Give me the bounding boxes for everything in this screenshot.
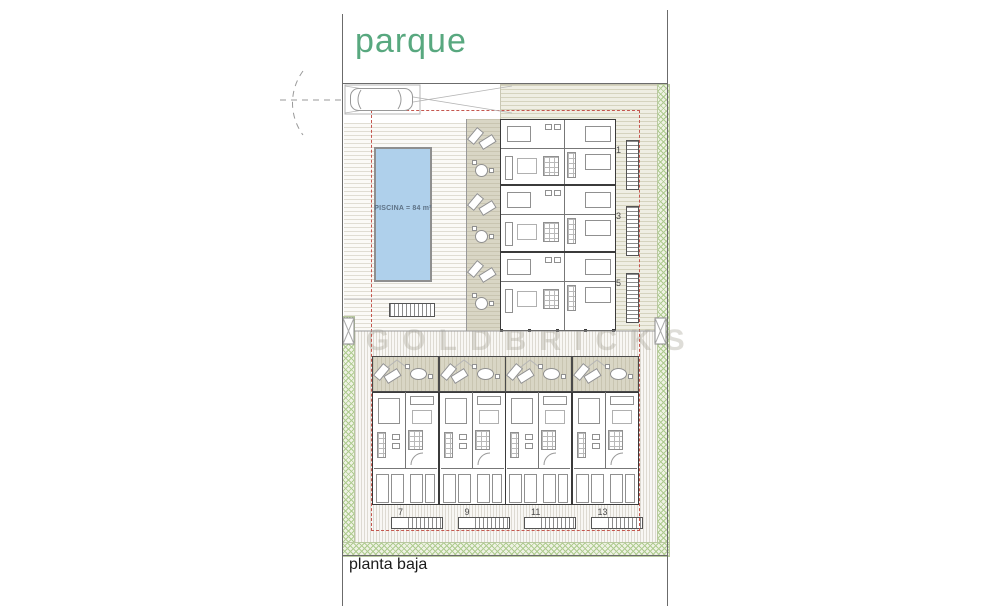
terrace-chair-icon	[472, 160, 477, 165]
bed-icon	[410, 474, 423, 503]
kitchen-counter-icon	[377, 432, 386, 458]
terrace-chair-icon	[561, 374, 566, 379]
pool-area-label: PISCINA = 84 m²	[374, 205, 432, 212]
swimming-pool	[374, 147, 432, 282]
dining-table-icon	[608, 430, 623, 450]
bed-icon	[585, 192, 611, 208]
stairs-icon	[626, 140, 639, 190]
pergola-grille	[524, 517, 576, 529]
wardrobe-icon	[492, 474, 502, 503]
pergola-grille	[458, 517, 510, 529]
bed-icon	[585, 126, 611, 142]
unit-number: 9	[465, 507, 470, 517]
floor-plan-label: planta baja	[349, 556, 427, 574]
bath-fixture-icon	[392, 443, 400, 449]
grille-bars	[541, 518, 575, 528]
unit-number: 11	[531, 507, 540, 517]
bed-icon	[585, 287, 611, 303]
bath-fixture-icon	[459, 434, 467, 440]
pergola-grille	[391, 517, 443, 529]
rug-icon	[412, 410, 432, 424]
interior-wall	[564, 120, 565, 184]
dining-table-icon	[408, 430, 423, 450]
bed-icon	[509, 474, 522, 503]
bed-icon	[507, 192, 531, 208]
interior-wall	[501, 281, 615, 282]
grille-bars	[408, 518, 442, 528]
bed-icon	[376, 474, 389, 503]
sofa-icon	[610, 396, 634, 405]
rug-icon	[479, 410, 499, 424]
rug-icon	[545, 410, 565, 424]
wardrobe-icon	[558, 474, 568, 503]
terrace-chair-icon	[472, 364, 477, 369]
unit-number: 13	[598, 507, 608, 517]
bed-icon	[445, 398, 467, 424]
gate-swing-arc	[292, 71, 303, 135]
terrace-chair-icon	[628, 374, 633, 379]
park-label: parque	[355, 22, 467, 61]
kitchen-counter-icon	[444, 432, 453, 458]
interior-wall	[374, 468, 437, 469]
pool-steps-grille	[389, 303, 435, 317]
sheet-border-left	[342, 14, 343, 606]
sofa-icon	[505, 289, 513, 313]
interior-wall	[574, 468, 637, 469]
bed-icon	[585, 220, 611, 236]
bed-icon	[507, 126, 531, 142]
terrace-chair-icon	[472, 226, 477, 231]
plan-top-line	[342, 83, 668, 84]
bed-icon	[507, 259, 531, 275]
bath-fixture-icon	[592, 434, 600, 440]
terrace-chair-icon	[489, 234, 494, 239]
rug-icon	[612, 410, 632, 424]
bath-fixture-icon	[554, 190, 561, 196]
apartment-unit: 11	[505, 356, 572, 531]
terrace-table-icon	[610, 368, 627, 380]
pergola-grille	[591, 517, 643, 529]
bath-fixture-icon	[545, 124, 552, 130]
terrace-table-icon	[475, 164, 488, 177]
terrace-table-icon	[410, 368, 427, 380]
planting-strip-left	[342, 316, 355, 544]
apartment-unit: 1	[500, 119, 616, 185]
unit-number: 7	[398, 507, 403, 517]
interior-wall	[501, 214, 615, 215]
bed-icon	[578, 398, 600, 424]
bath-fixture-icon	[592, 443, 600, 449]
apartment-unit: 7	[372, 356, 439, 531]
dining-table-icon	[541, 430, 556, 450]
terrace-chair-icon	[495, 374, 500, 379]
bed-icon	[585, 154, 611, 170]
bed-icon	[610, 474, 623, 503]
kitchen-counter-icon	[567, 285, 576, 311]
kitchen-counter-icon	[567, 218, 576, 244]
terrace-chair-icon	[428, 374, 433, 379]
terrace-chair-icon	[489, 168, 494, 173]
bed-icon	[591, 474, 604, 503]
interior-wall	[538, 392, 539, 468]
bath-fixture-icon	[525, 443, 533, 449]
kitchen-counter-icon	[577, 432, 586, 458]
unit-number: 1	[616, 145, 621, 155]
terrace-table-icon	[543, 368, 560, 380]
bed-icon	[543, 474, 556, 503]
site-plan-sheet: GOLDBRICKS PISCINA = 84 m² 1	[0, 0, 1001, 606]
stairs-icon	[626, 273, 639, 323]
kitchen-counter-icon	[510, 432, 519, 458]
sofa-icon	[477, 396, 501, 405]
bed-icon	[585, 259, 611, 275]
bed-icon	[576, 474, 589, 503]
bath-fixture-icon	[459, 443, 467, 449]
terrace-table-icon	[477, 368, 494, 380]
dining-table-icon	[475, 430, 490, 450]
stairs-icon	[626, 206, 639, 256]
kitchen-counter-icon	[567, 152, 576, 178]
bed-icon	[378, 398, 400, 424]
sofa-icon	[543, 396, 567, 405]
dining-table-icon	[543, 156, 559, 176]
bed-icon	[477, 474, 490, 503]
rug-icon	[517, 224, 537, 240]
rug-icon	[517, 158, 537, 174]
bath-fixture-icon	[554, 124, 561, 130]
bath-fixture-icon	[525, 434, 533, 440]
terrace-chair-icon	[489, 301, 494, 306]
grille-bars	[390, 304, 434, 316]
interior-wall	[405, 392, 406, 468]
terrace-chair-icon	[405, 364, 410, 369]
grille-bars	[608, 518, 642, 528]
wardrobe-icon	[425, 474, 435, 503]
bath-fixture-icon	[545, 190, 552, 196]
bed-icon	[458, 474, 471, 503]
dining-table-icon	[543, 222, 559, 242]
dining-table-icon	[543, 289, 559, 309]
apartment-unit: 13	[572, 356, 639, 531]
bath-fixture-icon	[392, 434, 400, 440]
bed-icon	[443, 474, 456, 503]
parking-space	[345, 85, 420, 114]
unit-number: 3	[616, 211, 621, 221]
terrace-chair-icon	[472, 293, 477, 298]
sheet-border-right	[667, 10, 668, 606]
bath-fixture-icon	[554, 257, 561, 263]
terrace-table-icon	[475, 230, 488, 243]
bath-fixture-icon	[545, 257, 552, 263]
terrace-chair-icon	[538, 364, 543, 369]
interior-wall	[501, 148, 615, 149]
apartment-unit: 3	[500, 185, 616, 252]
wardrobe-icon	[625, 474, 635, 503]
interior-wall	[564, 253, 565, 330]
interior-wall	[564, 186, 565, 251]
apartment-unit: 9	[439, 356, 506, 531]
planting-strip-right	[657, 84, 670, 557]
bed-icon	[391, 474, 404, 503]
interior-wall	[605, 392, 606, 468]
terrace-table-icon	[475, 297, 488, 310]
sofa-icon	[505, 222, 513, 246]
terrace-chair-icon	[605, 364, 610, 369]
sight-line	[345, 86, 512, 113]
interior-wall	[441, 468, 504, 469]
car-icon	[351, 89, 413, 111]
sight-line	[345, 86, 512, 113]
interior-wall	[507, 468, 570, 469]
apartment-unit: 5	[500, 252, 616, 331]
bed-icon	[511, 398, 533, 424]
sofa-icon	[410, 396, 434, 405]
bed-icon	[524, 474, 537, 503]
unit-number: 5	[616, 278, 621, 288]
sofa-icon	[505, 156, 513, 180]
upper-building-columns	[500, 329, 616, 332]
grille-bars	[475, 518, 509, 528]
interior-wall	[472, 392, 473, 468]
rug-icon	[517, 291, 537, 307]
